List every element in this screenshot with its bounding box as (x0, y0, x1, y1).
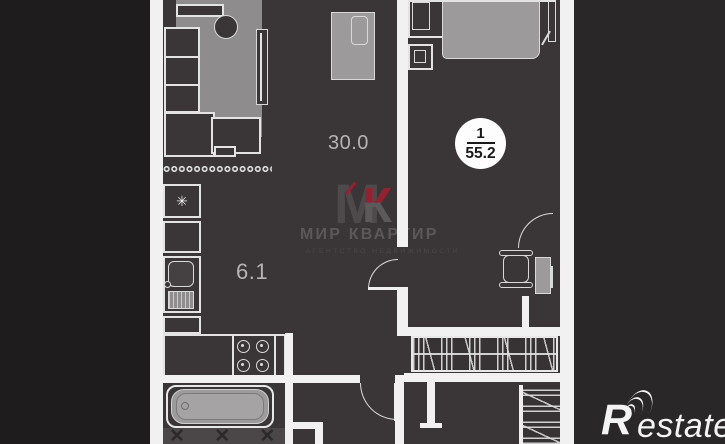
room-label-living: 30.0 (328, 132, 369, 155)
decor-bead-row (163, 163, 272, 176)
kitchen-cabinet (163, 221, 201, 253)
bed-edge-line (415, 0, 556, 2)
burner-icon (256, 359, 269, 372)
sofa-cushion-line (166, 56, 198, 58)
wall-hallway-stub (427, 381, 435, 428)
office-chair-armrest (499, 250, 533, 256)
wall-wc-step-vertical (315, 422, 323, 444)
tv (256, 29, 268, 105)
sofa-chaise (176, 4, 224, 17)
badge-rooms-count: 1 (476, 126, 484, 141)
bathtub-drain (181, 402, 189, 410)
closet-shelves (519, 385, 560, 444)
stove (232, 336, 274, 377)
wall-living-bedroom-upper (397, 0, 408, 247)
background-left (0, 0, 150, 444)
burner-icon (237, 359, 250, 372)
office-chair-armrest (499, 282, 533, 288)
counter-divider (274, 336, 276, 376)
wall-bedroom-closet-stub (522, 296, 529, 328)
office-chair (503, 255, 529, 283)
watermark-title: МИР КВАРТИР (300, 226, 440, 244)
door-leaf-living (368, 287, 399, 290)
door-leaf-bathroom (394, 383, 397, 421)
watermark-tagline: АГЕНТСТВО НЕДВИЖИМОСТИ (306, 248, 460, 255)
wall-bathroom-right (285, 333, 293, 444)
snowflake-icon: ✳ (163, 184, 201, 218)
sofa-cushion-line (166, 84, 198, 86)
pillow (412, 2, 430, 30)
tile-floor: ✕ ✕ ✕ ✕ ✕ (163, 428, 286, 444)
sink-bowl (168, 261, 194, 287)
wardrobe-hatch (411, 336, 558, 372)
sofa-corner (164, 112, 215, 157)
wall-right-exterior (560, 0, 574, 444)
wall-bedroom-bottom (397, 327, 560, 336)
desk (535, 257, 551, 294)
wall-bathroom-top (150, 375, 360, 383)
restate-logo-text: estate (637, 409, 725, 443)
coffee-table (214, 15, 238, 39)
bed-blanket (442, 0, 540, 59)
floor-plan-image: ✳ ✕ ✕ ✕ ✕ ✕ (0, 0, 725, 444)
window-leaf (548, 0, 556, 42)
nightstand-inner (414, 50, 426, 63)
sofa-back (164, 27, 200, 113)
burner-icon (256, 340, 269, 353)
wall-hallway-stub-foot (420, 423, 442, 428)
faucet-icon (164, 281, 171, 288)
badge-divider (467, 142, 495, 144)
badge-total-area: 55.2 (465, 146, 495, 161)
room-label-kitchen-niche: 6.1 (236, 259, 268, 285)
kitchen-cabinet (163, 316, 201, 334)
chair (351, 16, 368, 45)
sink-drainboard (168, 291, 194, 309)
sofa-footrest (214, 146, 236, 157)
tv-screen-line (260, 33, 262, 101)
desk-bracket (551, 266, 553, 288)
bathtub-basin (176, 393, 264, 420)
burner-icon (237, 340, 250, 353)
area-badge: 1 55.2 (455, 118, 506, 169)
